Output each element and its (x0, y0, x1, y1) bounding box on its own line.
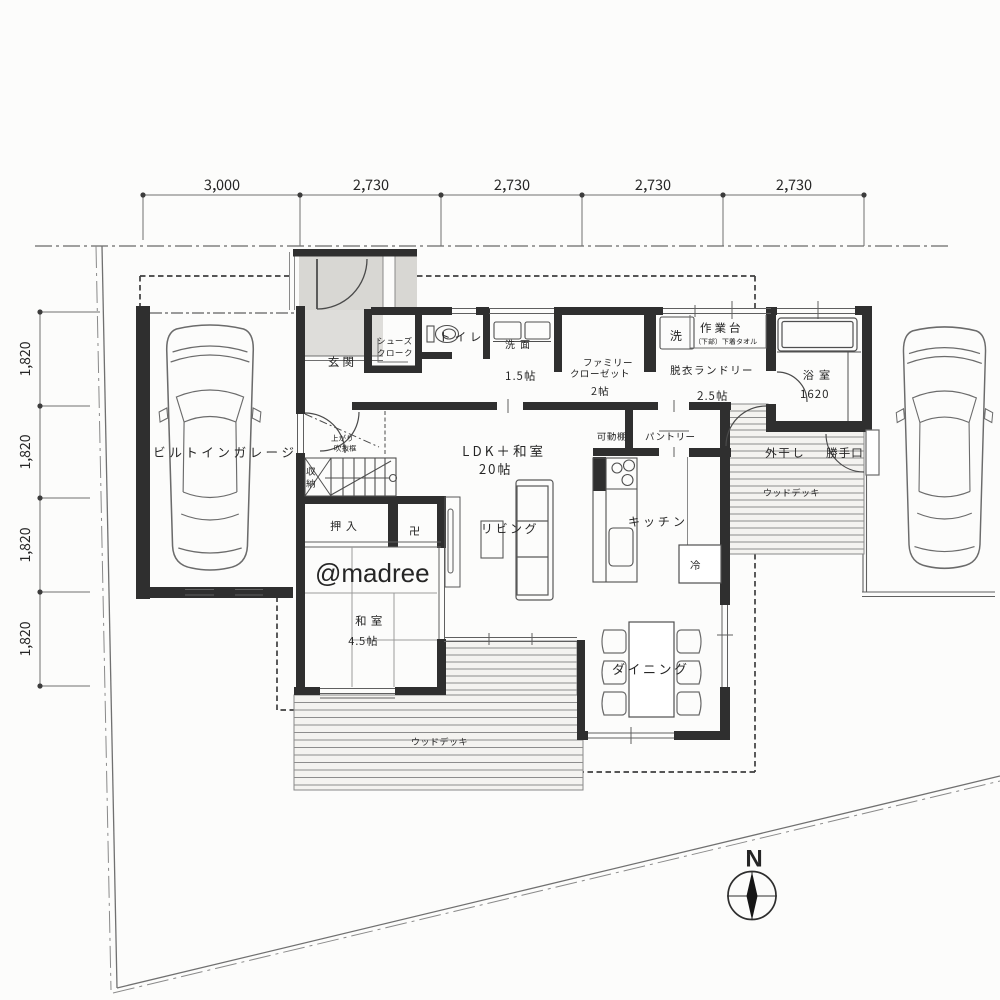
svg-text:（下部）下着タオル: （下部）下着タオル (694, 337, 758, 347)
svg-text:ダイニング: ダイニング (612, 659, 690, 678)
svg-text:LDK＋和室: LDK＋和室 (462, 440, 546, 460)
svg-text:浴室: 浴室 (803, 367, 835, 383)
svg-text:勝手口: 勝手口 (826, 445, 864, 461)
svg-text:2,730: 2,730 (635, 174, 671, 195)
svg-text:1.5帖: 1.5帖 (505, 368, 536, 384)
svg-text:ウッドデッキ: ウッドデッキ (411, 735, 468, 748)
svg-text:冷: 冷 (690, 558, 701, 573)
svg-text:和室: 和室 (355, 613, 387, 629)
svg-text:3,000: 3,000 (204, 174, 240, 195)
svg-text:2帖: 2帖 (591, 384, 609, 399)
svg-text:クローゼット: クローゼット (570, 366, 630, 380)
svg-text:2.5帖: 2.5帖 (697, 388, 728, 404)
svg-text:N: N (745, 846, 762, 873)
svg-text:4.5帖: 4.5帖 (348, 633, 378, 649)
svg-text:トイレ: トイレ (439, 329, 486, 345)
svg-text:外干し: 外干し (765, 445, 806, 461)
svg-text:リビング: リビング (481, 520, 539, 537)
svg-text:吹抜框: 吹抜框 (334, 443, 357, 454)
svg-text:玄関: 玄関 (328, 354, 357, 370)
svg-text:洗面: 洗面 (505, 336, 535, 351)
svg-text:パントリー: パントリー (645, 429, 695, 443)
svg-text:ビルトインガレージ: ビルトインガレージ (153, 442, 298, 461)
svg-text:クローク: クローク (377, 347, 413, 359)
svg-text:脱衣ランドリー: 脱衣ランドリー (670, 363, 754, 378)
svg-text:卍: 卍 (409, 523, 420, 539)
svg-text:2,730: 2,730 (776, 174, 812, 195)
svg-text:1,820: 1,820 (15, 621, 35, 656)
svg-text:可動棚: 可動棚 (597, 429, 627, 443)
svg-text:@madree: @madree (315, 558, 430, 588)
svg-text:洗: 洗 (670, 327, 682, 344)
svg-text:2,730: 2,730 (494, 174, 530, 195)
svg-text:2,730: 2,730 (353, 174, 389, 195)
svg-text:納: 納 (306, 476, 316, 490)
svg-text:1,820: 1,820 (15, 434, 35, 469)
svg-text:1620: 1620 (800, 386, 830, 402)
svg-text:1,820: 1,820 (15, 341, 35, 376)
svg-text:キッチン: キッチン (628, 513, 688, 530)
svg-text:押入: 押入 (330, 518, 362, 534)
svg-text:作業台: 作業台 (700, 320, 744, 336)
svg-text:シューズ: シューズ (377, 335, 413, 347)
svg-text:1,820: 1,820 (15, 527, 35, 562)
svg-text:20帖: 20帖 (479, 459, 512, 478)
svg-text:ウッドデッキ: ウッドデッキ (763, 486, 820, 499)
